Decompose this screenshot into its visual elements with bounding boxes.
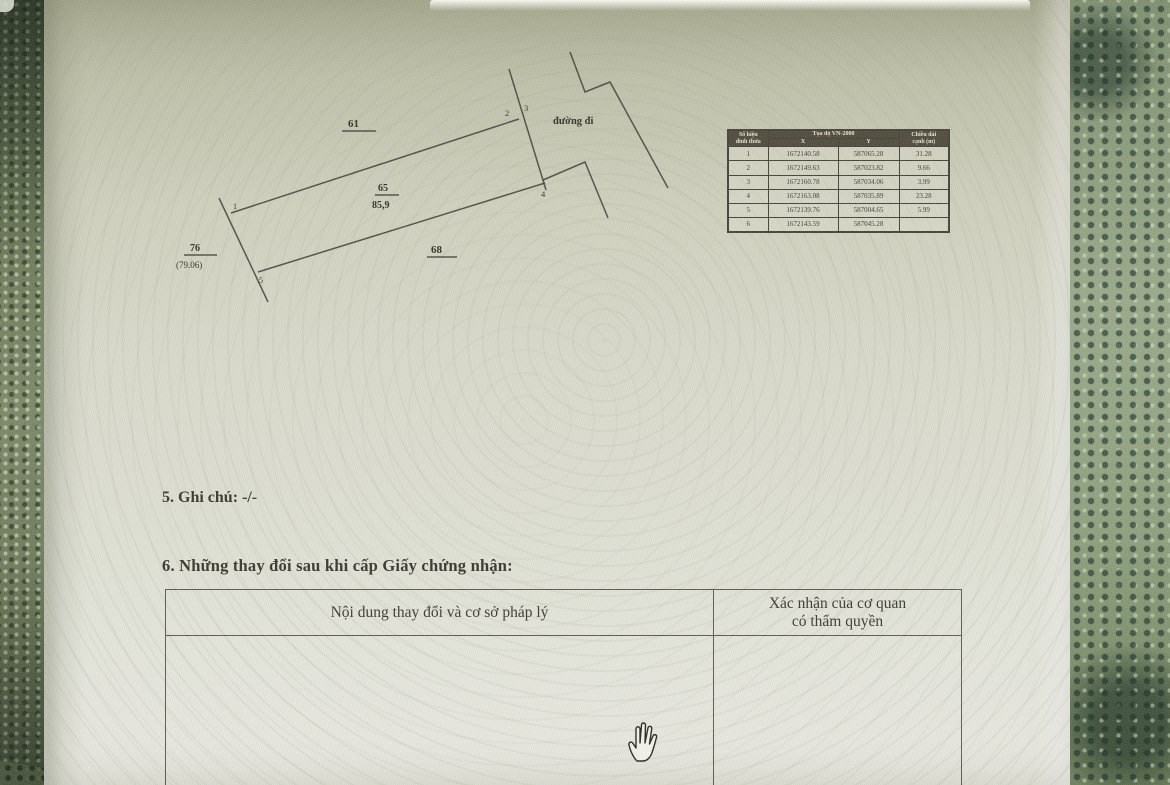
coord-row: 5 1672139.76 587004.65 5.99	[728, 203, 949, 217]
coord-header-length: Chiều dài cạnh (m)	[899, 130, 949, 147]
coord-x: 1672143.59	[768, 217, 838, 232]
coord-header-vertex: Số hiệu đỉnh thửa	[728, 130, 768, 147]
coord-header-y: Y	[838, 139, 899, 147]
coord-x: 1672149.63	[768, 161, 838, 175]
edge-length: 9.66	[899, 161, 949, 175]
vertex-no: 3	[728, 175, 768, 189]
coord-x: 1672160.78	[768, 175, 838, 189]
tablecloth-lace-left	[0, 0, 46, 785]
coord-header-vertex-line2: đỉnh thửa	[729, 139, 768, 146]
coord-header-x: X	[768, 139, 838, 147]
coord-row: 4 1672163.08 587035.89 23.28	[728, 189, 949, 203]
changes-col2-header-line2: có thẩm quyền	[792, 613, 883, 631]
coord-x: 1672139.76	[768, 203, 838, 217]
edge-length	[899, 217, 949, 232]
coord-header-vn2000: Tọa độ VN-2000	[768, 130, 899, 139]
coordinate-table: Số hiệu đỉnh thửa Tọa độ VN-2000 Chiều d…	[727, 129, 950, 233]
section-5-note: 5. Ghi chú: -/-	[162, 489, 257, 507]
changes-table-body	[166, 636, 961, 785]
coord-header-length-line2: cạnh (m)	[900, 139, 949, 146]
coord-row: 6 1672143.59 587045.28	[728, 217, 949, 232]
changes-col2-header-line1: Xác nhận của cơ quan	[769, 595, 906, 613]
changes-col1-header-text: Nội dung thay đổi và cơ sở pháp lý	[331, 604, 549, 622]
coord-row: 3 1672160.78 587034.06 3.99	[728, 175, 949, 189]
coord-y: 587065.28	[838, 147, 899, 161]
coord-row: 2 1672149.63 587023.82 9.66	[728, 161, 949, 175]
coord-y: 587004.65	[838, 203, 899, 217]
coord-x: 1672163.08	[768, 189, 838, 203]
vertex-no: 6	[728, 217, 768, 232]
vertex-no: 4	[728, 189, 768, 203]
coord-y: 587035.89	[838, 189, 899, 203]
coord-y: 587034.06	[838, 175, 899, 189]
edge-length: 5.99	[899, 203, 949, 217]
edge-length: 3.99	[899, 175, 949, 189]
coord-x: 1672140.58	[768, 147, 838, 161]
coord-header-length-line1: Chiều dài	[900, 132, 949, 139]
coord-y: 587045.28	[838, 217, 899, 232]
changes-col1-header-cell: Nội dung thay đổi và cơ sở pháp lý	[166, 590, 714, 635]
vertex-no: 2	[728, 161, 768, 175]
coord-row: 1 1672140.58 587065.28 31.28	[728, 147, 949, 161]
tablecloth-lace-right	[1068, 0, 1170, 785]
coord-header-vertex-line1: Số hiệu	[729, 132, 768, 139]
changes-table-header: Nội dung thay đổi và cơ sở pháp lý Xác n…	[166, 590, 961, 636]
vertex-no: 5	[728, 203, 768, 217]
changes-table: Nội dung thay đổi và cơ sở pháp lý Xác n…	[165, 589, 962, 785]
section-6-heading: 6. Những thay đổi sau khi cấp Giấy chứng…	[162, 556, 513, 576]
coord-y: 587023.82	[838, 161, 899, 175]
vertex-no: 1	[728, 147, 768, 161]
photo-of-certificate-document: 61 đường đi 2 3 4 1 5 65 85,9 76 (79.06)…	[0, 0, 1170, 785]
hand-cursor-icon	[627, 719, 661, 763]
changes-col2-header-cell: Xác nhận của cơ quan có thẩm quyền	[714, 590, 961, 635]
edge-length: 31.28	[899, 147, 949, 161]
paper-top-glare	[430, 0, 1030, 11]
edge-length: 23.28	[899, 189, 949, 203]
